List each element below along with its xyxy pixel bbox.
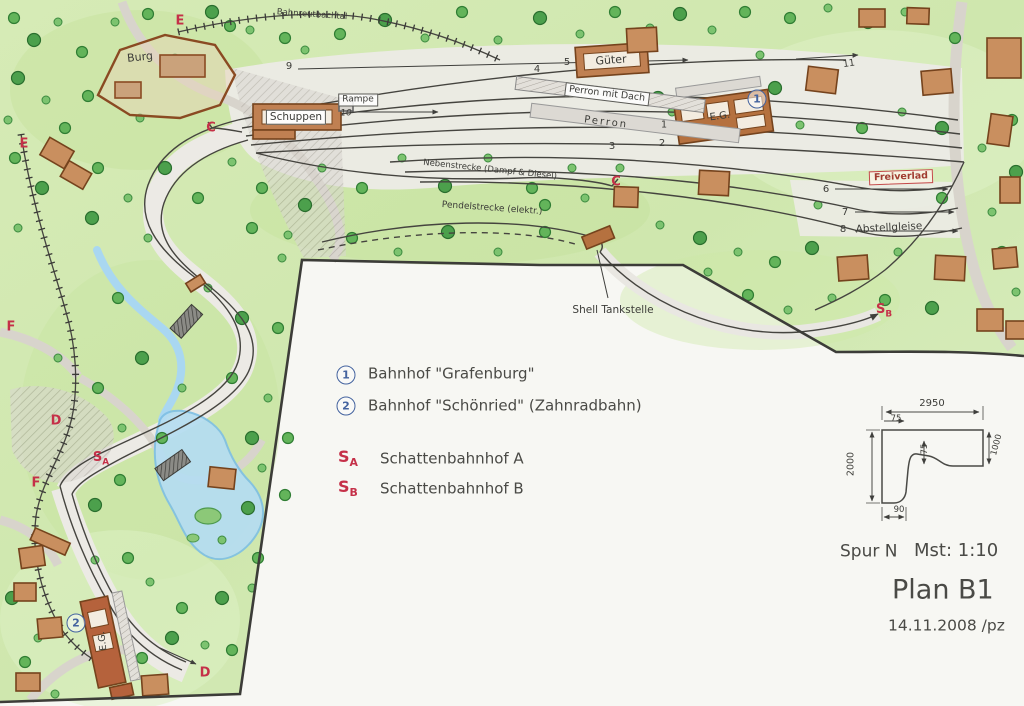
dim-bottom: 90 xyxy=(894,506,905,515)
marker-sa-sub: A xyxy=(102,457,109,467)
plan-date: 14.11.2008 /pz xyxy=(888,618,1005,634)
circled-2-map: 2 xyxy=(67,614,86,633)
marker-e-top: E xyxy=(176,15,185,28)
legend-station2: Bahnhof "Schönried" (Zahnradbahn) xyxy=(368,399,642,414)
dim-inner: 75 xyxy=(921,444,930,455)
track-number-6: 6 xyxy=(823,185,829,195)
label-schuppen: Schuppen xyxy=(266,110,326,125)
track-number-7: 7 xyxy=(842,208,848,218)
marker-sa-s: S xyxy=(93,450,102,465)
legend-sa-sub: A xyxy=(350,456,358,469)
marker-c-left: C xyxy=(206,122,216,135)
track-number-1: 1 xyxy=(661,120,667,130)
trackplan-scan: Burg Bahnreutbachtal E E C C F D F SA SB… xyxy=(0,0,1024,706)
marker-f-top: F xyxy=(7,321,16,334)
legend-sb-sub: B xyxy=(350,486,358,499)
track-number-9: 9 xyxy=(286,62,292,72)
scale-label: Mst: 1:10 xyxy=(914,542,998,560)
label-burg: Burg xyxy=(127,50,154,64)
marker-sa-map: SA xyxy=(93,451,109,467)
label-gueter: Güter xyxy=(595,53,627,66)
legend-sb-s: S xyxy=(338,477,350,496)
dimension-sketch xyxy=(866,406,989,521)
track-number-5: 5 xyxy=(564,58,570,68)
marker-sb-s: S xyxy=(876,302,885,317)
legend-sb-code: SB xyxy=(338,479,358,499)
label-rampe: Rampe xyxy=(338,94,378,107)
plan-title: Plan B1 xyxy=(892,577,994,604)
dim-top-left: 75 xyxy=(891,415,902,424)
marker-sb-map: SB xyxy=(876,303,892,319)
track-number-4: 4 xyxy=(534,65,540,75)
track-number-10: 10 xyxy=(340,110,351,119)
track-number-11: 11 xyxy=(842,58,855,69)
legend-circled-2: 2 xyxy=(337,397,356,416)
legend-shadow-b: Schattenbahnhof B xyxy=(380,482,524,497)
marker-c-mid: C xyxy=(611,176,621,189)
legend-shadow-a: Schattenbahnhof A xyxy=(380,452,524,467)
track-number-3: 3 xyxy=(609,142,615,152)
label-eg-schoenried: E.G. xyxy=(97,631,109,651)
circled-1-map: 1 xyxy=(748,90,767,109)
legend-circled-1: 1 xyxy=(337,366,356,385)
track-number-2: 2 xyxy=(659,139,665,149)
label-shell-tankstelle: Shell Tankstelle xyxy=(572,305,653,316)
dim-top: 2950 xyxy=(919,399,944,409)
marker-d-left: D xyxy=(51,415,62,428)
marker-d-bottom: D xyxy=(200,667,211,680)
track-number-8: 8 xyxy=(840,225,846,235)
label-freiverlad: Freiverlad xyxy=(869,169,933,185)
legend-sa-s: S xyxy=(338,447,350,466)
plan-drawing xyxy=(0,0,1024,706)
legend-station1: Bahnhof "Grafenburg" xyxy=(368,367,534,382)
marker-sb-sub: B xyxy=(885,309,892,319)
legend-sa-code: SA xyxy=(338,449,358,469)
dim-left: 2000 xyxy=(846,452,856,476)
marker-e-left: E xyxy=(20,138,29,151)
marker-f-mid: F xyxy=(32,477,41,490)
gauge-label: Spur N xyxy=(840,544,897,561)
